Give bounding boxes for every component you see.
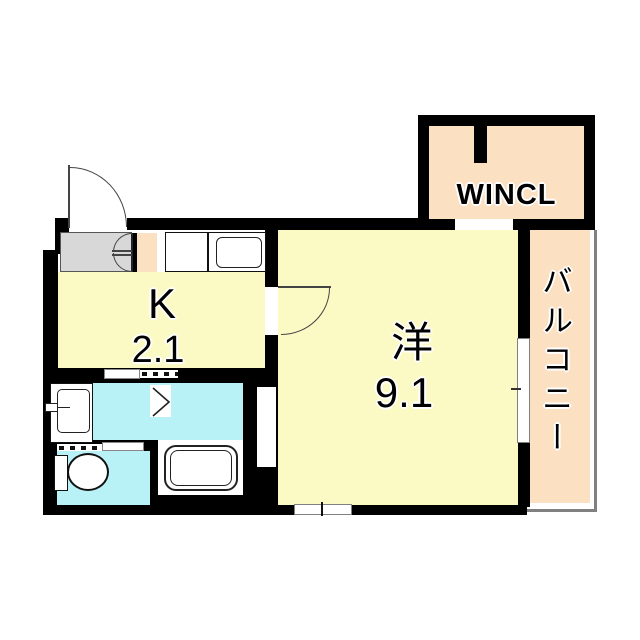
kitchen-sink-icon [216,237,262,268]
washroom-floor [93,383,150,440]
balcony-label: バルコニー [539,237,570,487]
bathtub-inner [170,450,232,486]
kitchen-label: K [130,283,194,325]
room-door-opening [265,287,278,335]
folding-door-icon [151,386,171,418]
window-tick [321,502,323,516]
window-icon [294,504,352,515]
closet-door-leaf [112,250,132,252]
counter-divider [207,233,209,271]
washbasin-faucet [45,403,58,412]
balcony-rail-bottom [527,509,597,512]
wincl-label: WINCL [429,181,584,210]
sliding-door-icon [104,369,140,379]
toilet-icon [67,453,109,491]
entrance-door-swing-arc [70,167,127,227]
balcony-rail-right [594,230,597,512]
western-room-area: 9.1 [356,372,452,414]
kitchen-area: 2.1 [110,331,206,369]
sliding-door-track [140,370,178,378]
pipe-space [257,387,276,467]
window-icon [517,338,530,443]
western-room-floor [278,230,518,505]
floorplan: WINCL バルコニー 洋 9.1 K 2.1 [0,0,640,640]
wall-bottom [43,505,527,515]
sliding-door-icon [102,442,144,451]
washbasin-icon [57,389,90,433]
closet-door-leaf [112,254,132,256]
western-room-label: 洋 [380,322,444,364]
window-tick [511,388,521,390]
toilet-tank [54,455,68,491]
wincl-partition-stub [474,126,487,163]
washbasin-faucet-spout [58,407,70,408]
